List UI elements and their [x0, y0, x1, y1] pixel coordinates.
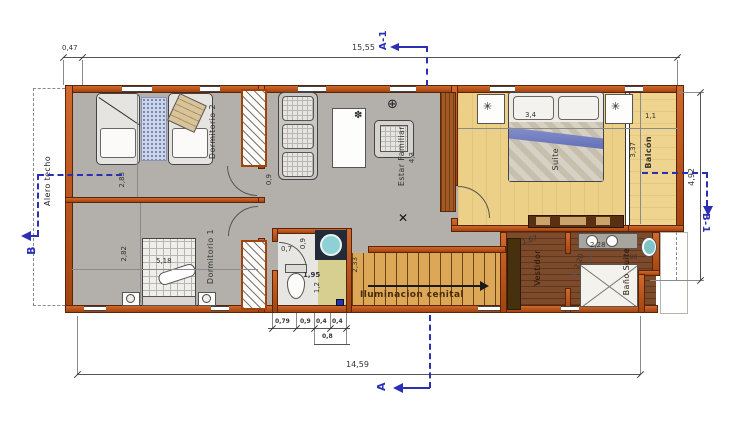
alero-note: Alero techo [44, 156, 52, 206]
dresser-item [596, 217, 610, 225]
window [84, 306, 106, 311]
dim-dorm1-width: 2,82 [121, 246, 128, 262]
ext-line [677, 60, 678, 85]
projection-line [676, 232, 677, 280]
eave-outline [660, 232, 688, 314]
room-label-estar: Estar Familiar [398, 126, 406, 186]
dim-bath-row-sub: 0,8 [322, 334, 333, 340]
dim-line [458, 128, 678, 129]
wall-balcony-right [676, 85, 684, 232]
window [122, 86, 152, 92]
wall-junction [258, 197, 265, 203]
dim-bath-width: 0,9 [300, 238, 307, 249]
section-b-line [30, 235, 39, 237]
dim-bath-row-1: 0,79 [275, 319, 290, 325]
section-b1-label: B-1 [700, 213, 710, 233]
section-b1-line [642, 172, 708, 174]
room-label-dormitorio2: Dormitorio 2 [209, 104, 217, 159]
wall-dorm-divider [65, 197, 263, 203]
room-label-suite: Suite [552, 148, 560, 170]
alero-dashed-line [33, 88, 34, 306]
wall-dressing-divider-a [565, 232, 571, 254]
section-a1-label: A-1 [379, 30, 389, 50]
dim-bath-inner: 1,2 [314, 282, 321, 293]
window [200, 86, 220, 92]
wall-stairs-top [368, 246, 506, 253]
section-a-line [402, 387, 430, 389]
dim-bath-row-4: 0,4 [332, 319, 343, 325]
alero-dashed-line [33, 88, 65, 89]
sofa-cushion [282, 96, 314, 121]
dim-estar-area: 4,3 [409, 152, 416, 163]
sink-oval [320, 234, 342, 256]
bed-suite-pillow [558, 96, 599, 120]
dim-line-right [700, 92, 701, 280]
window [390, 86, 416, 92]
bidet-bowl [644, 240, 655, 254]
dim-total-top: 15,55 [352, 44, 375, 52]
dim-bath-row-2: 0,9 [300, 319, 311, 325]
floor-balcony [628, 88, 678, 232]
section-b-line [38, 174, 122, 176]
room-label-vestidor: Vestidor [534, 250, 542, 286]
rug-dotted [141, 97, 167, 161]
window [478, 306, 500, 311]
stairs-arrow-head [480, 281, 489, 291]
ext-line [77, 316, 78, 374]
section-b-label: B [26, 246, 37, 255]
section-a-line [429, 315, 431, 388]
bed-single-2-pillow [172, 128, 208, 158]
dim-line-top [63, 57, 680, 58]
cross-symbol-icon: ✕ [398, 212, 408, 224]
ext-line [63, 60, 64, 85]
window [625, 86, 643, 92]
wood-closet-strip [440, 92, 456, 212]
sofa-cushion [282, 152, 314, 177]
sofa-cushion [282, 124, 314, 149]
section-a-label: A [376, 382, 387, 391]
nightstand-lamp [202, 294, 211, 303]
dim-bano-small: 0,90 [624, 255, 637, 261]
section-b-arrow [21, 231, 31, 241]
dim-dorm1-length: 5,18 [156, 258, 172, 265]
dim-bath-door: 0,7 [281, 246, 292, 253]
ext-line [640, 316, 641, 374]
alero-dashed-line [33, 305, 65, 306]
dim-line [72, 269, 258, 270]
dim-total-bottom: 14,59 [346, 361, 369, 369]
fan-icon: ✳ [483, 101, 492, 112]
floor-plan-canvas: 2,83 Dormitorio 2 2,82 5,18 Dormitorio 1… [0, 0, 750, 428]
section-b-line [37, 174, 39, 236]
section-a1-line [399, 46, 427, 48]
fan-icon: ✳ [611, 101, 620, 112]
sink-round [606, 235, 618, 247]
window [561, 306, 579, 311]
room-label-balcon: Balcón [645, 136, 653, 169]
dim-tick [637, 371, 644, 378]
section-a1-arrow [390, 43, 399, 51]
wall-bath2-right-low [638, 274, 645, 313]
floor-drain [336, 299, 344, 306]
dim-bath-row-3: 0,4 [316, 319, 327, 325]
dresser-item [536, 217, 550, 225]
section-a-arrow [393, 383, 403, 393]
dim-suite-bed: 3,4 [525, 112, 536, 119]
dim-balcon-depth: 1,1 [645, 113, 656, 120]
dim-line-bottom [77, 374, 640, 375]
wardrobe-dorm2 [241, 89, 267, 167]
dim-offset-left: 0,47 [62, 45, 78, 52]
dim-line [140, 203, 141, 303]
dim-line [640, 93, 641, 224]
room-label-dormitorio1: Dormitorio 1 [207, 229, 215, 284]
nightstand-lamp [126, 294, 135, 303]
dim-line [268, 328, 350, 329]
bed-double-headboard [142, 296, 196, 306]
dim-bano-counter: 2,28 [590, 242, 606, 249]
wall-balcony-bottom [628, 225, 684, 232]
dim-line [137, 93, 138, 197]
ext-line [82, 60, 83, 85]
stairs-arrow-line [368, 285, 482, 287]
bed-single-1-pillow [100, 128, 136, 158]
dim-line [314, 344, 350, 345]
dim-side-right: 4,92 [688, 168, 696, 186]
wall-bath-left-a [272, 228, 278, 242]
stairs-note: Iluminacion cenital [360, 291, 464, 300]
wardrobe-dorm1 [241, 240, 267, 310]
dresser-item [560, 217, 586, 225]
ext-line [650, 280, 704, 281]
section-a1-line [426, 46, 428, 86]
window [211, 306, 229, 311]
wall-bath-left-b [272, 270, 278, 313]
section-b1-line [706, 172, 708, 206]
flower-icon: ✽ [354, 111, 362, 121]
dim-balcon-length: 3,37 [630, 142, 637, 158]
dim-estar-pass: 0,9 [266, 174, 273, 185]
dim-bath-length: 1,95 [303, 272, 320, 279]
ceiling-light-icon: ⊕ [387, 98, 398, 111]
dim-stair-width: 2,33 [352, 257, 359, 273]
closet-dark [507, 238, 521, 310]
wall-dressing-left [500, 232, 507, 313]
